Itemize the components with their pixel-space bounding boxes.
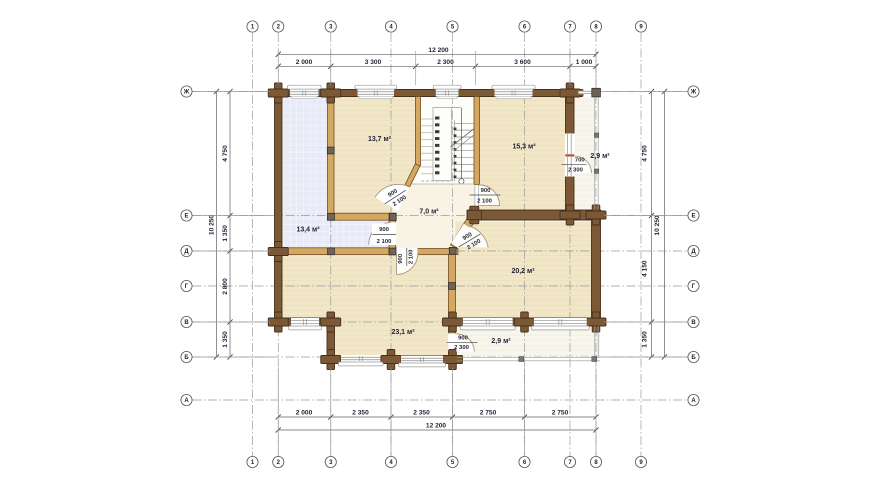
svg-text:В: В	[691, 320, 696, 326]
svg-text:4 750: 4 750	[642, 145, 649, 162]
svg-text:12 200: 12 200	[426, 422, 447, 429]
svg-text:13,4 м²: 13,4 м²	[296, 227, 320, 234]
svg-text:Е: Е	[691, 214, 695, 220]
svg-text:2 000: 2 000	[296, 409, 313, 416]
svg-text:20,2 м²: 20,2 м²	[511, 268, 535, 275]
svg-text:2,9 м²: 2,9 м²	[590, 153, 610, 160]
svg-text:Г: Г	[185, 284, 189, 290]
svg-text:Д: Д	[691, 249, 696, 255]
svg-text:900: 900	[398, 253, 404, 264]
svg-text:2 300: 2 300	[437, 59, 454, 66]
svg-text:1 350: 1 350	[222, 331, 229, 348]
svg-text:2 750: 2 750	[480, 409, 497, 416]
svg-text:Е: Е	[184, 214, 188, 220]
svg-text:23,1 м²: 23,1 м²	[391, 329, 415, 336]
svg-text:15,3 м²: 15,3 м²	[512, 144, 536, 151]
svg-text:2 100: 2 100	[477, 198, 492, 204]
svg-text:900: 900	[379, 227, 390, 233]
svg-text:900: 900	[458, 335, 469, 341]
svg-text:Б: Б	[691, 355, 696, 361]
svg-text:3 600: 3 600	[514, 59, 531, 66]
svg-text:700: 700	[575, 157, 586, 163]
svg-text:10 250: 10 250	[209, 215, 216, 236]
svg-text:2 350: 2 350	[413, 409, 430, 416]
svg-text:4 150: 4 150	[642, 260, 649, 277]
svg-text:1 000: 1 000	[576, 59, 593, 66]
svg-text:2,9 м²: 2,9 м²	[491, 338, 511, 345]
svg-text:10 250: 10 250	[654, 215, 661, 236]
svg-text:13,7 м²: 13,7 м²	[368, 136, 392, 143]
svg-text:А: А	[184, 398, 189, 404]
svg-text:Д: Д	[184, 249, 189, 255]
svg-text:Ж: Ж	[690, 90, 697, 96]
svg-text:4 750: 4 750	[222, 145, 229, 162]
svg-text:3 300: 3 300	[365, 59, 382, 66]
svg-text:А: А	[691, 398, 696, 404]
svg-text:1 350: 1 350	[642, 331, 649, 348]
svg-text:7,0 м²: 7,0 м²	[419, 209, 439, 216]
svg-text:12 200: 12 200	[428, 47, 449, 54]
svg-text:2 000: 2 000	[296, 59, 313, 66]
svg-text:В: В	[184, 320, 189, 326]
svg-text:2 300: 2 300	[568, 168, 583, 174]
svg-text:Ж: Ж	[183, 90, 190, 96]
svg-text:2 300: 2 300	[454, 345, 469, 351]
svg-text:2 100: 2 100	[408, 249, 414, 264]
svg-text:2 750: 2 750	[552, 409, 569, 416]
svg-text:Г: Г	[692, 284, 696, 290]
svg-text:2 100: 2 100	[377, 239, 392, 245]
svg-text:1 350: 1 350	[222, 225, 229, 242]
svg-text:Б: Б	[184, 355, 189, 361]
svg-text:2 350: 2 350	[352, 409, 369, 416]
svg-text:900: 900	[481, 188, 492, 194]
svg-text:2 800: 2 800	[222, 278, 229, 295]
